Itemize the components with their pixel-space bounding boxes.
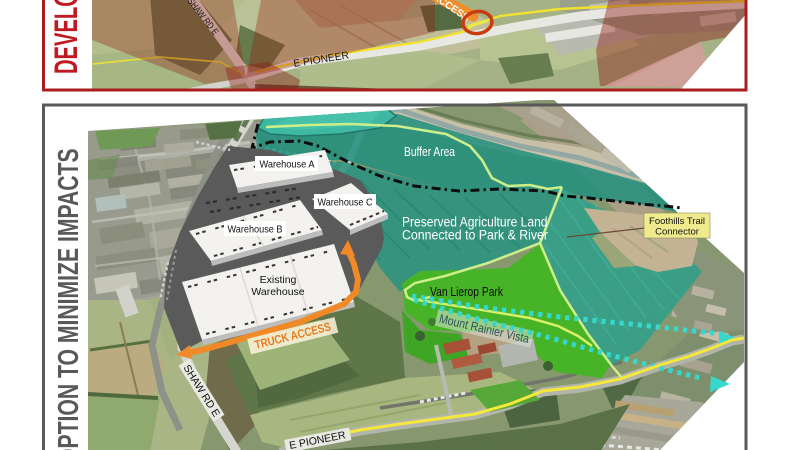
svg-text:Warehouse C: Warehouse C xyxy=(318,197,373,209)
svg-text:Warehouse B: Warehouse B xyxy=(228,224,283,236)
svg-text:Foothills Trail: Foothills Trail xyxy=(649,216,705,227)
svg-text:Van Lierop Park: Van Lierop Park xyxy=(430,285,504,299)
svg-text:Connected to Park & River: Connected to Park & River xyxy=(402,228,548,243)
svg-text:DEVELOPMENT: DEVELOPMENT xyxy=(48,0,84,74)
svg-text:OPTION TO MINIMIZE IMPACTS: OPTION TO MINIMIZE IMPACTS xyxy=(53,148,85,450)
svg-text:Warehouse: Warehouse xyxy=(251,286,304,298)
svg-text:Warehouse A: Warehouse A xyxy=(260,159,315,171)
svg-text:Buffer Area: Buffer Area xyxy=(404,144,456,159)
svg-text:Connector: Connector xyxy=(655,227,699,238)
svg-text:Existing: Existing xyxy=(260,274,297,286)
